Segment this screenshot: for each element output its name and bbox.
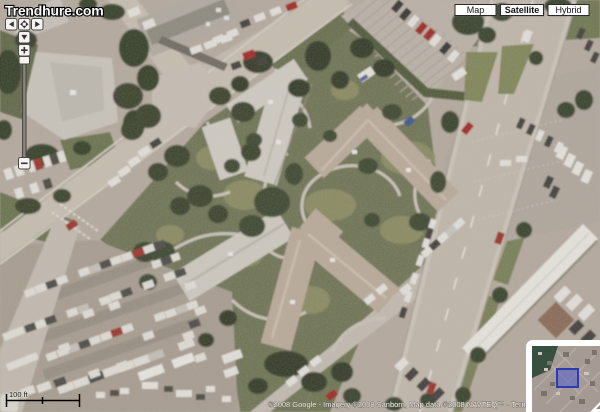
svg-text:Hybrid: Hybrid xyxy=(555,5,581,15)
svg-text:Satellite: Satellite xyxy=(505,5,540,15)
svg-text:Map: Map xyxy=(467,5,485,15)
svg-text:Trendhure.com: Trendhure.com xyxy=(5,3,104,19)
svg-text:©2008 Google - Imagery ©2008 S: ©2008 Google - Imagery ©2008 Sanborn, Ma… xyxy=(268,400,555,409)
svg-text:100 ft: 100 ft xyxy=(9,390,29,399)
